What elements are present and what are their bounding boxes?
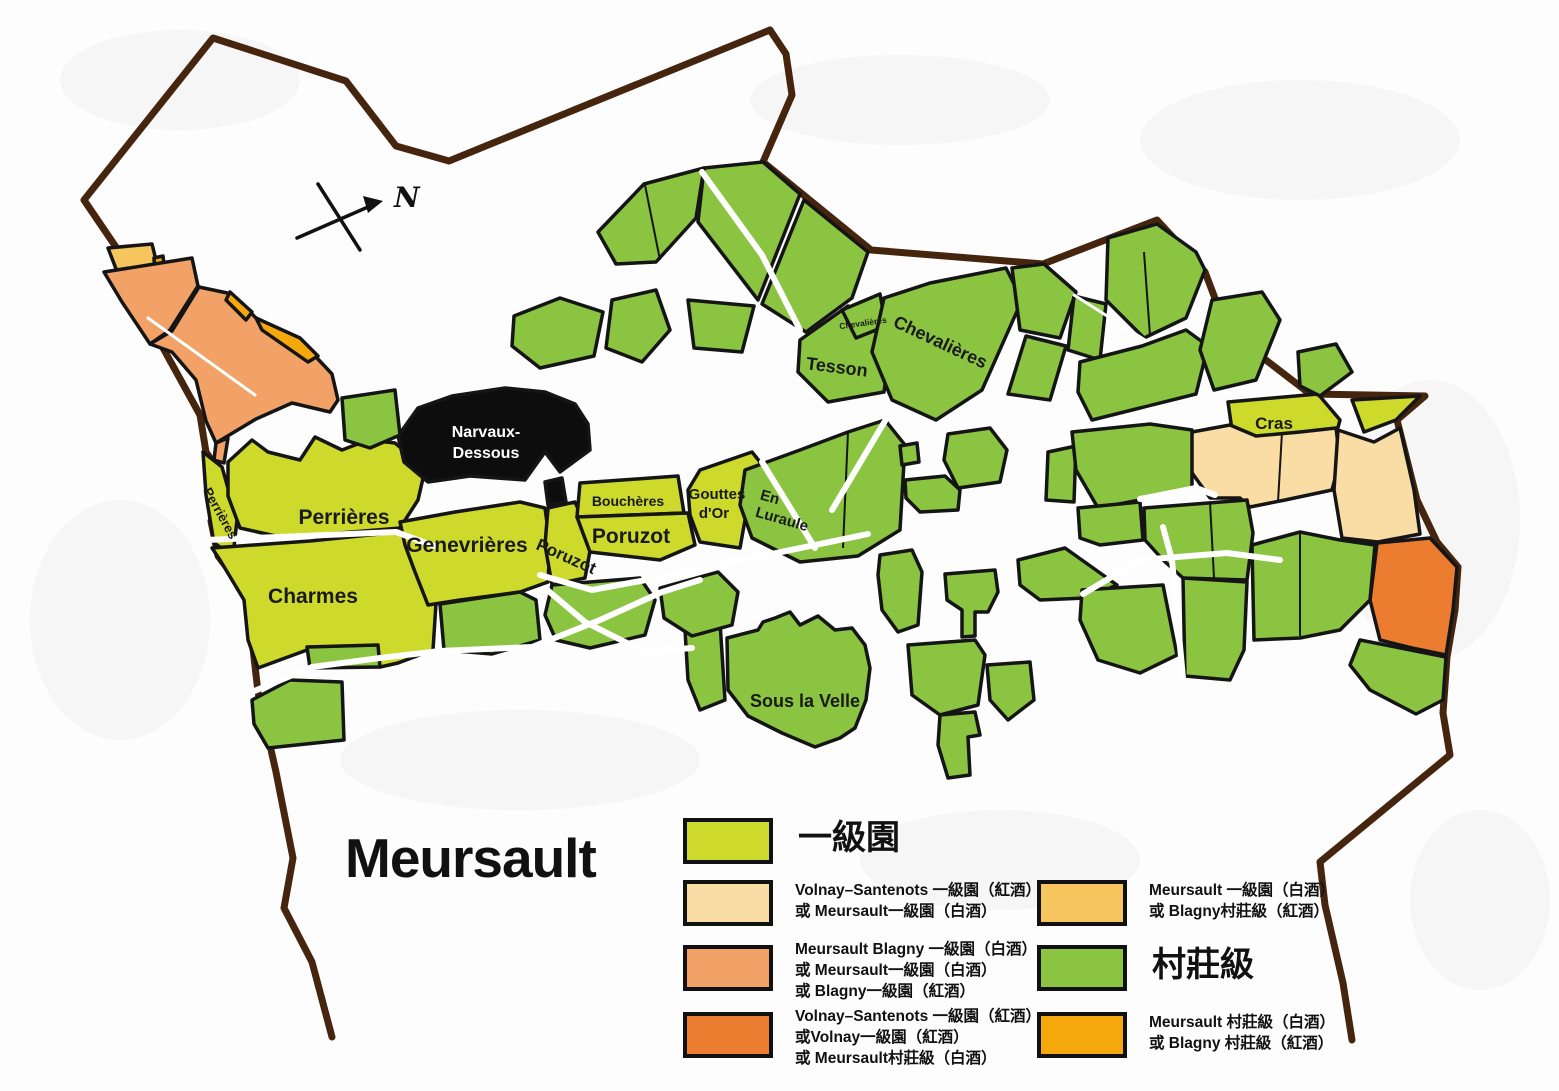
legend-line: 或 Meursault村莊級（白酒） <box>795 1048 1041 1069</box>
parcel-village <box>1080 585 1177 673</box>
parcel-village <box>342 390 400 448</box>
parcel-village <box>1144 500 1253 580</box>
legend-label: 村莊級 <box>1152 945 1254 985</box>
compass-arrowhead <box>363 196 383 213</box>
map-canvas: Perrières Perrières Charmes Genevrières … <box>0 0 1559 1091</box>
parcel-village <box>1078 502 1143 545</box>
parcel-village <box>688 300 754 352</box>
legend-line: 或 Blagny村莊級（紅酒） <box>1149 901 1335 922</box>
parcel-village <box>252 680 344 748</box>
meursault-map-page: Perrières Perrières Charmes Genevrières … <box>0 0 1559 1091</box>
legend-line: Meursault 一級園（白酒） <box>1149 880 1335 901</box>
parcel-village <box>1012 264 1076 338</box>
legend-swatch-premier-cru <box>683 818 773 864</box>
legend-item-blagny-premier-cru: Meursault Blagny 一級園（白酒） 或 Meursault一級園（… <box>683 945 1037 1002</box>
legend-line: Volnay–Santenots 一級園（紅酒） <box>795 880 1041 901</box>
legend-line: Meursault 村莊級（白酒） <box>1149 1012 1335 1033</box>
parcel-village <box>987 662 1034 720</box>
parcel-village <box>1252 532 1375 640</box>
label-charmes: Charmes <box>268 585 358 608</box>
legend-swatch-meursault-village-white <box>1037 1012 1127 1058</box>
compass-north-label: N <box>393 181 421 214</box>
parcel-village <box>945 570 998 637</box>
parcel-village <box>905 476 960 512</box>
label-poruzot: Poruzot <box>592 525 670 548</box>
label-narvaux-dessous: Narvaux- <box>452 424 520 441</box>
legend-item-meursault-premier-cru-white: Meursault 一級園（白酒） 或 Blagny村莊級（紅酒） <box>1037 880 1335 926</box>
parcel-village <box>606 290 670 362</box>
parcel-village <box>908 640 985 715</box>
legend-item-santenots-white: Volnay–Santenots 一級園（紅酒） 或 Meursault一級園（… <box>683 880 1041 926</box>
parcel-village <box>1298 344 1352 396</box>
parcel-village <box>1106 224 1205 338</box>
legend-line: 或Volnay一級園（紅酒） <box>795 1027 1041 1048</box>
legend-label: 一級園 <box>798 818 900 858</box>
parcel-village <box>900 443 919 465</box>
legend-swatch-meursault-premier-cru-white <box>1037 880 1127 926</box>
parcel-sous-la-velle <box>727 612 870 747</box>
label-sous-la-velle: Sous la Velle <box>750 691 860 711</box>
map-title: Meursault <box>345 826 596 890</box>
legend-line: 或 Meursault一級園（白酒） <box>795 901 1041 922</box>
legend-line: 或 Blagny一級園（紅酒） <box>795 981 1037 1002</box>
parcel-village <box>1008 336 1066 400</box>
legend-line: Volnay–Santenots 一級園（紅酒） <box>795 1006 1041 1027</box>
legend-line: 或 Meursault一級園（白酒） <box>795 960 1037 981</box>
parcel-village <box>944 428 1007 488</box>
parcels <box>104 162 1457 778</box>
parcel-village <box>878 550 922 632</box>
compass: N <box>297 181 421 250</box>
legend-line: Meursault Blagny 一級園（白酒） <box>795 939 1037 960</box>
parcel-village <box>1183 578 1247 680</box>
legend-swatch-village <box>1037 945 1127 991</box>
legend-item-santenots-red: Volnay–Santenots 一級園（紅酒） 或Volnay一級園（紅酒） … <box>683 1012 1041 1069</box>
label-perrieres: Perrières <box>298 506 389 529</box>
parcel-village <box>1046 446 1076 502</box>
parcel-village <box>1068 296 1106 360</box>
legend-item-village: 村莊級 <box>1037 945 1254 991</box>
parcel-village <box>1072 424 1192 508</box>
parcel-santenots-red <box>1370 538 1457 655</box>
label-cras: Cras <box>1255 414 1293 433</box>
legend-swatch-santenots-red <box>683 1012 773 1058</box>
compass-cross-line <box>318 184 360 250</box>
compass-arrow-line <box>297 207 368 238</box>
legend-item-meursault-village-white: Meursault 村莊級（白酒） 或 Blagny 村莊級（紅酒） <box>1037 1012 1335 1058</box>
label-gouttes-dor: Gouttes <box>689 486 746 503</box>
label-boucheres: Bouchères <box>592 493 665 509</box>
label-gouttes-dor: d'Or <box>699 505 729 522</box>
legend-item-premier-cru: 一級園 <box>683 818 900 864</box>
parcel-narvaux-fragment <box>545 478 566 505</box>
label-genevrieres: Genevrières <box>406 534 527 557</box>
parcel-village <box>1200 292 1280 390</box>
legend-line: 或 Blagny 村莊級（紅酒） <box>1149 1033 1335 1054</box>
legend-swatch-blagny-premier-cru <box>683 945 773 991</box>
parcel-village <box>512 298 603 368</box>
parcel-blagny-tail <box>214 438 228 463</box>
parcel-village <box>938 712 980 778</box>
legend-swatch-santenots-white <box>683 880 773 926</box>
label-narvaux-dessous: Dessous <box>453 445 520 462</box>
